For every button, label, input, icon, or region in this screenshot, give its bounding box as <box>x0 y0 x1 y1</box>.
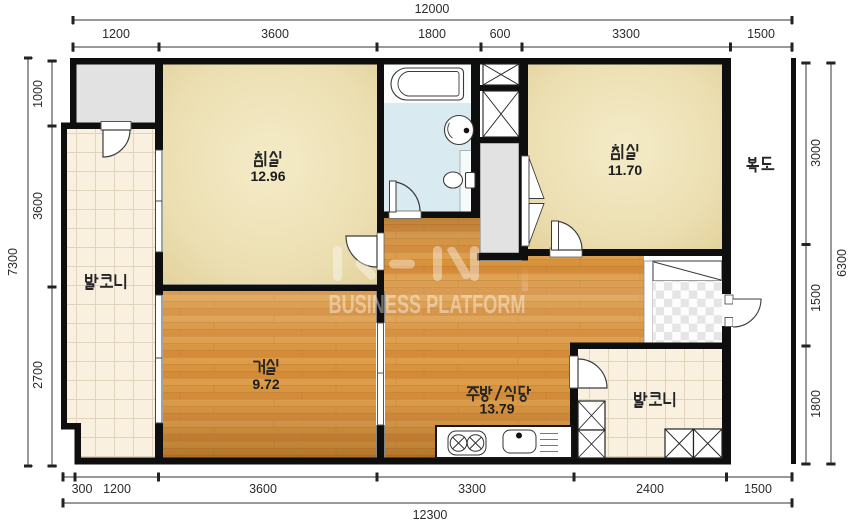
svg-text:1200: 1200 <box>103 482 131 496</box>
svg-text:1800: 1800 <box>809 390 823 418</box>
svg-text:9.72: 9.72 <box>252 376 279 392</box>
svg-text:1800: 1800 <box>418 27 446 41</box>
svg-text:1200: 1200 <box>102 27 130 41</box>
svg-text:12000: 12000 <box>415 2 450 16</box>
svg-text:1500: 1500 <box>744 482 772 496</box>
svg-text:2400: 2400 <box>636 482 664 496</box>
svg-text:1500: 1500 <box>809 284 823 312</box>
svg-text:7300: 7300 <box>6 248 20 276</box>
svg-text:12300: 12300 <box>413 508 448 522</box>
svg-text:BUSINESS PLATFORM: BUSINESS PLATFORM <box>329 289 526 319</box>
svg-text:2700: 2700 <box>31 361 45 389</box>
svg-text:3000: 3000 <box>809 139 823 167</box>
svg-text:1000: 1000 <box>31 80 45 108</box>
svg-text:1500: 1500 <box>747 27 775 41</box>
svg-text:13.79: 13.79 <box>479 401 514 417</box>
svg-text:12.96: 12.96 <box>250 168 285 184</box>
svg-text:3600: 3600 <box>249 482 277 496</box>
svg-text:11.70: 11.70 <box>608 162 642 178</box>
svg-text:300: 300 <box>72 482 93 496</box>
svg-text:600: 600 <box>490 27 511 41</box>
svg-text:3600: 3600 <box>31 192 45 220</box>
svg-text:3300: 3300 <box>612 27 640 41</box>
svg-text:6300: 6300 <box>835 249 849 277</box>
svg-text:3600: 3600 <box>261 27 289 41</box>
svg-text:3300: 3300 <box>458 482 486 496</box>
